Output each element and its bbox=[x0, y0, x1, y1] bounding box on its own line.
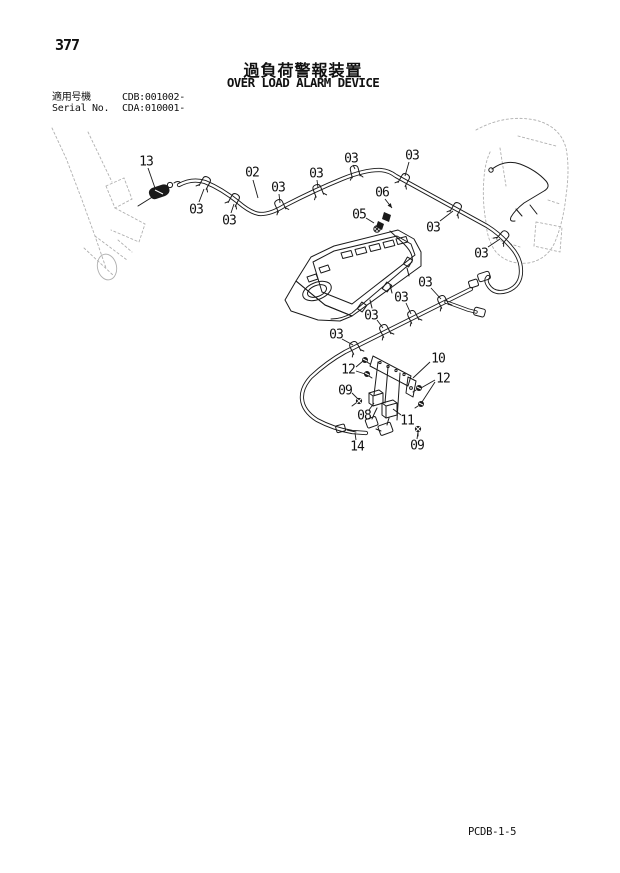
leader-line bbox=[413, 362, 430, 378]
harness-clips-layer bbox=[196, 164, 512, 357]
callout-label-11: 11 bbox=[400, 414, 414, 429]
leader-line bbox=[352, 393, 358, 399]
cover-oval-boss bbox=[300, 277, 334, 304]
leader-line bbox=[431, 288, 441, 299]
parts-diagram: 1303020303030303060503030303030310121209… bbox=[0, 0, 620, 873]
callout-label-09: 09 bbox=[338, 384, 352, 399]
buzzer-part bbox=[138, 182, 181, 207]
right-machine-outline bbox=[476, 118, 568, 263]
callout-label-03: 03 bbox=[271, 181, 285, 196]
catalog-page: { "page": { "number": "377", "title_ja":… bbox=[0, 0, 620, 873]
boom-pin-hole bbox=[95, 252, 119, 281]
leader-line bbox=[356, 371, 365, 374]
top-harness-tube bbox=[179, 170, 521, 292]
callout-label-06: 06 bbox=[375, 186, 389, 201]
callout-label-03: 03 bbox=[405, 149, 419, 164]
leader-line bbox=[440, 211, 453, 221]
callout-labels-layer: 1303020303030303060503030303030310121209… bbox=[139, 149, 488, 455]
callout-label-03: 03 bbox=[474, 247, 488, 262]
callout-label-03: 03 bbox=[222, 214, 236, 229]
connector bbox=[468, 279, 479, 288]
leader-line bbox=[231, 204, 234, 213]
engine-cover bbox=[285, 230, 421, 321]
leader-line bbox=[342, 339, 353, 345]
harness-end-loop bbox=[167, 182, 172, 187]
callout-label-02: 02 bbox=[245, 166, 259, 181]
callout-label-10: 10 bbox=[431, 352, 445, 367]
callout-label-13: 13 bbox=[139, 155, 153, 170]
leader-line bbox=[253, 180, 258, 198]
leader-line bbox=[421, 380, 435, 388]
callout-label-03: 03 bbox=[418, 276, 432, 291]
callout-label-03: 03 bbox=[344, 152, 358, 167]
mounting-plate bbox=[370, 356, 411, 386]
branch-cable bbox=[446, 302, 476, 312]
connector bbox=[378, 422, 394, 436]
callout-label-05: 05 bbox=[352, 208, 366, 223]
callout-label-03: 03 bbox=[309, 167, 323, 182]
leader-line bbox=[422, 382, 435, 402]
leader-line bbox=[366, 218, 374, 223]
callout-label-03: 03 bbox=[189, 203, 203, 218]
callout-label-14: 14 bbox=[350, 440, 365, 455]
callout-label-03: 03 bbox=[394, 291, 408, 306]
callout-label-03: 03 bbox=[329, 328, 343, 343]
leader-line bbox=[356, 361, 363, 367]
callout-label-08: 08 bbox=[357, 409, 371, 424]
leader-line bbox=[148, 168, 155, 188]
cover-slots bbox=[307, 237, 408, 283]
callout-label-09: 09 bbox=[410, 439, 424, 454]
leader-line bbox=[488, 239, 500, 247]
cab-harness-route bbox=[489, 162, 548, 221]
cable-clamp-parts bbox=[374, 212, 391, 232]
relay-box-08 bbox=[369, 390, 383, 406]
leader-line bbox=[199, 189, 204, 202]
callout-label-12: 12 bbox=[341, 363, 355, 378]
left-machine-outline bbox=[52, 128, 145, 282]
alarm-unit-11 bbox=[382, 400, 397, 418]
callout-label-12: 12 bbox=[436, 372, 450, 387]
callout-label-03: 03 bbox=[364, 309, 378, 324]
clamp-06 bbox=[382, 212, 391, 222]
callout-label-03: 03 bbox=[426, 221, 440, 236]
